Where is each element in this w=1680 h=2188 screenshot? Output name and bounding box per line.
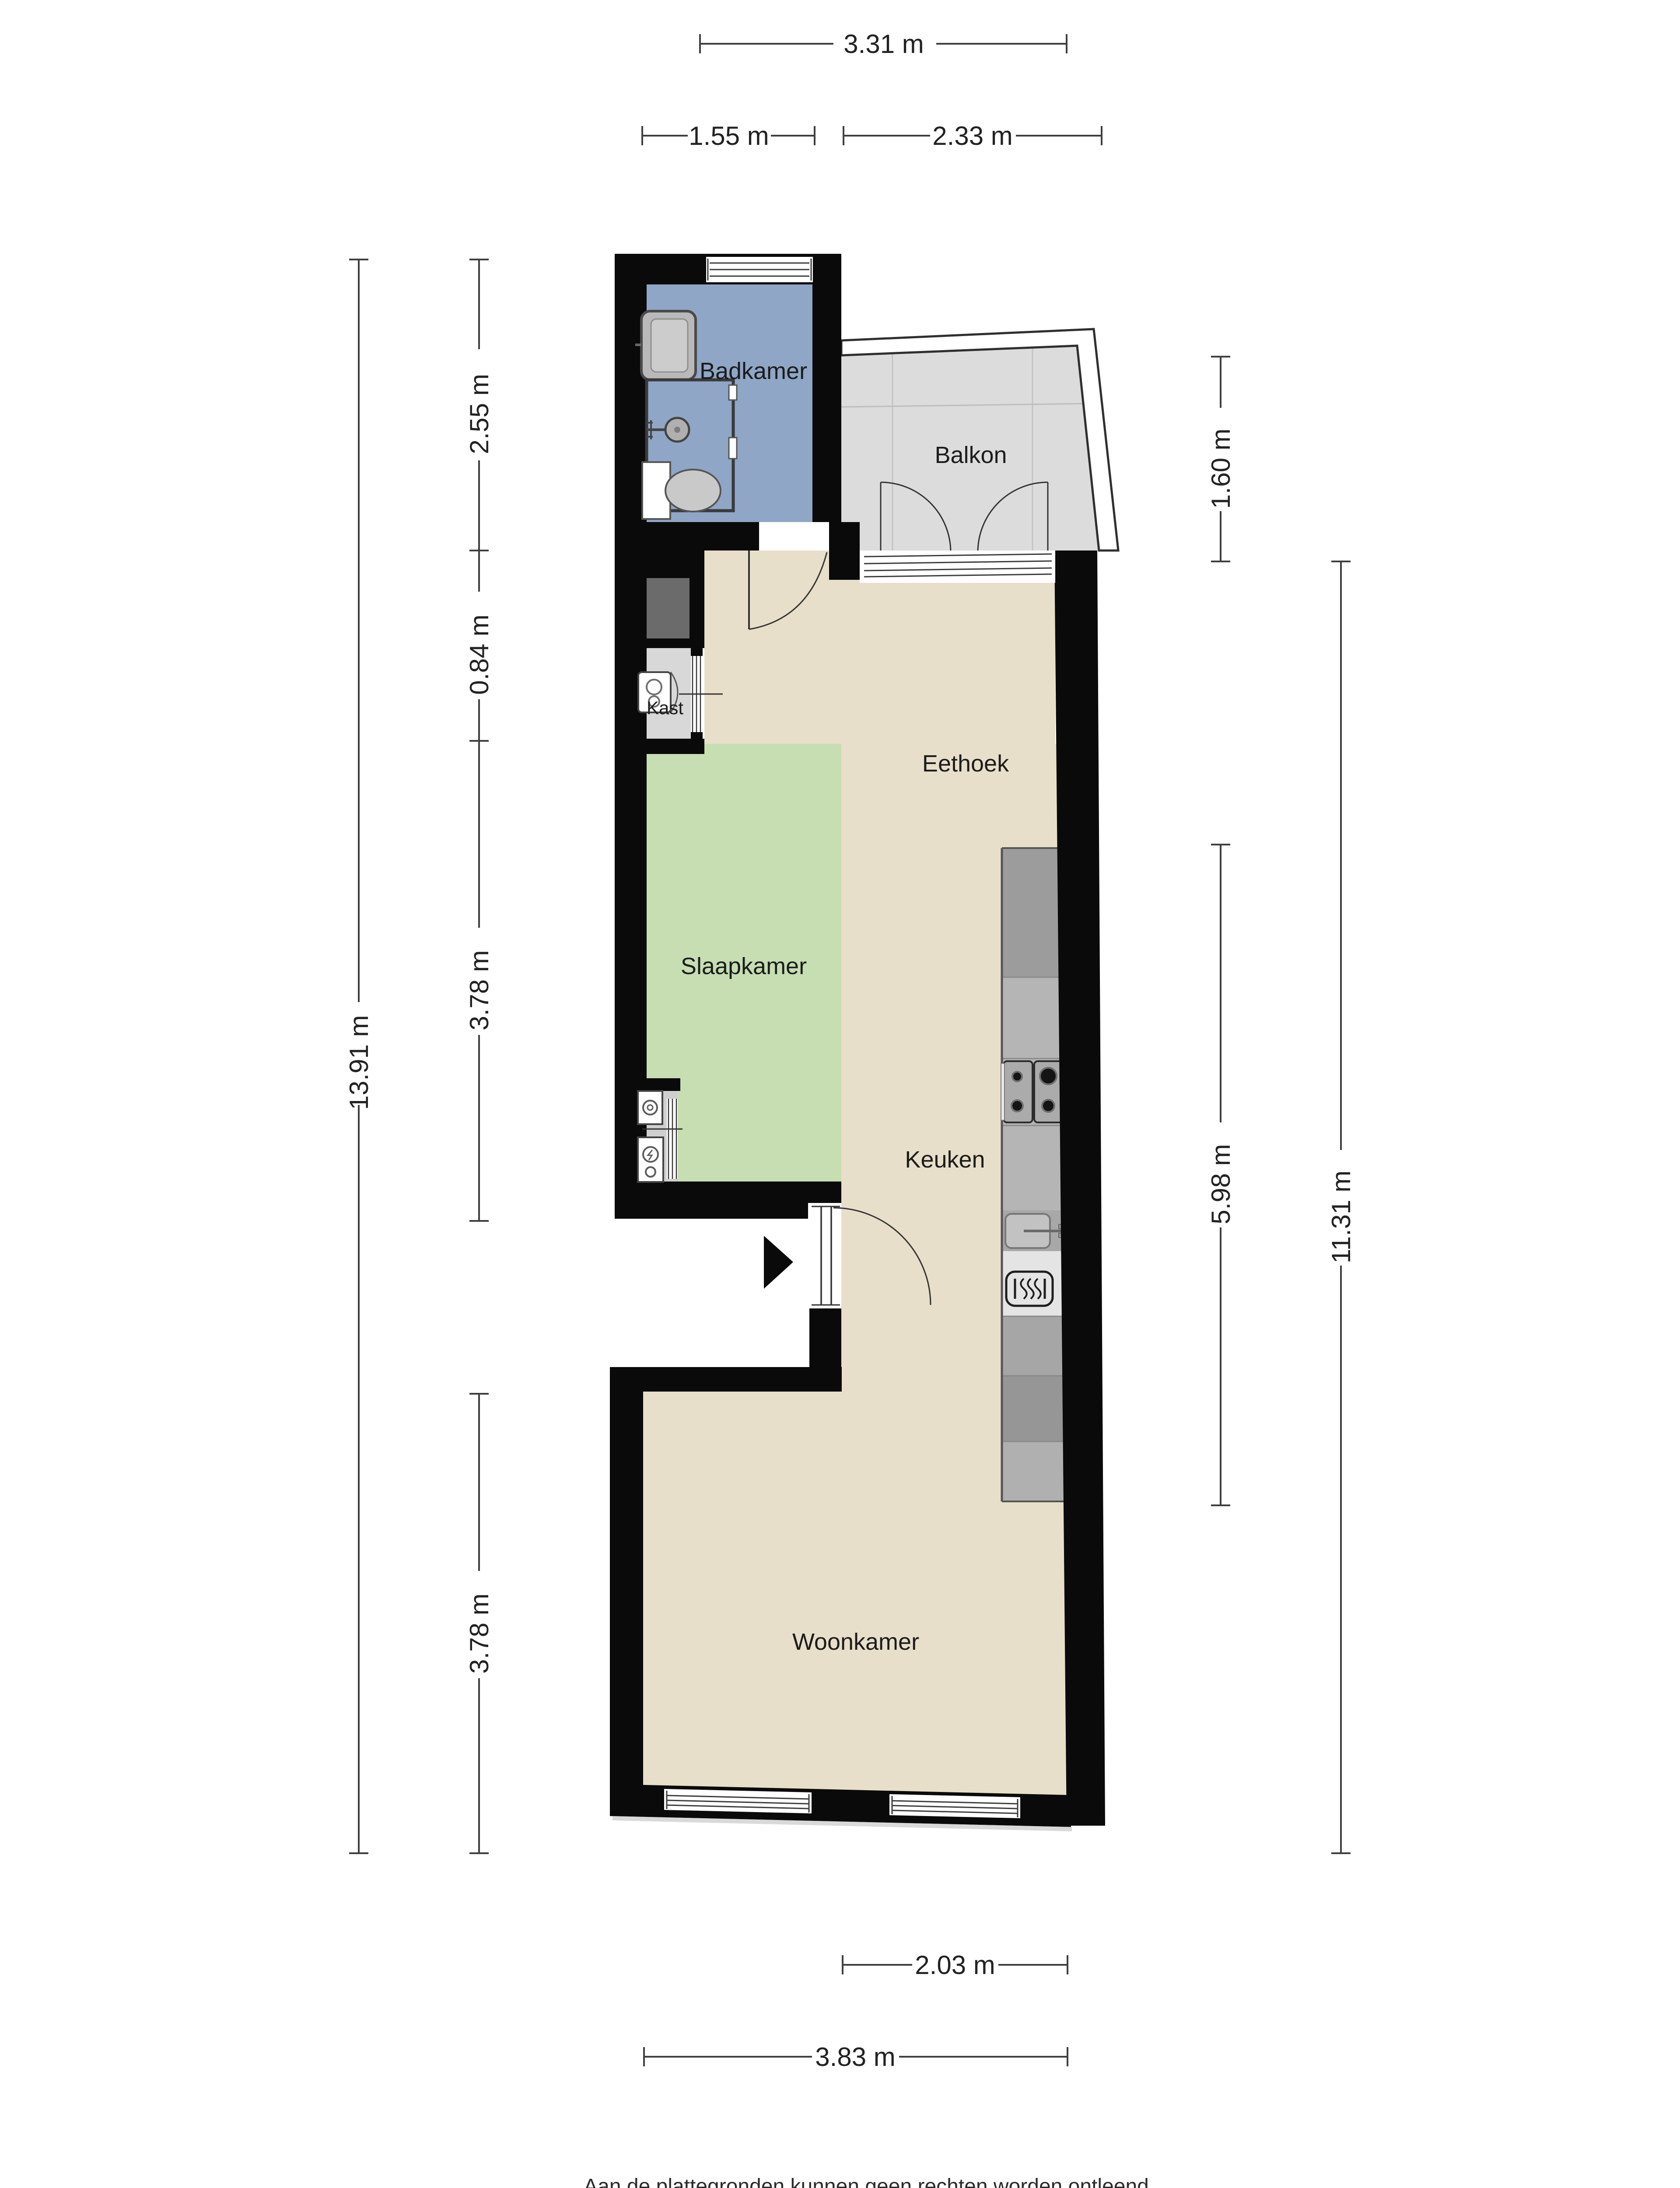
dim-bottom-total: 3.83 m	[644, 2042, 1067, 2072]
wall-left-upper	[615, 254, 647, 1219]
dim-top-balkon-label: 2.33 m	[932, 121, 1012, 151]
dim-left-slaapkamer-label: 3.78 m	[465, 950, 494, 1030]
wall-badkamer-bottom	[615, 522, 759, 551]
dim-left-woonkamer: 3.78 m	[465, 1394, 494, 1853]
dim-bottom-window-label: 2.03 m	[915, 1950, 995, 1980]
floorplan-page: Badkamer Balkon Eethoek Kast Slaapkamer …	[0, 0, 1680, 2188]
dim-top-total: 3.31 m	[700, 29, 1067, 59]
counter-segment	[1001, 848, 1067, 977]
dim-left-badkamer-label: 2.55 m	[465, 374, 494, 454]
dim-right-balkon-label: 1.60 m	[1206, 428, 1235, 508]
badkamer-label: Badkamer	[700, 358, 807, 384]
dim-bottom-total-label: 3.83 m	[815, 2042, 895, 2072]
woonkamer-window-right	[889, 1794, 1020, 1818]
wall-niche-right	[689, 578, 704, 638]
footer-disclaimer: Aan de plattegronden kunnen geen rechten…	[584, 2175, 1149, 2188]
slaapkamer-label: Slaapkamer	[681, 953, 807, 979]
dim-right-keuken-label: 5.98 m	[1206, 1144, 1235, 1224]
balkon-label: Balkon	[934, 442, 1007, 468]
wall-slaapkamer-bottom	[615, 1182, 841, 1219]
dim-left-woonkamer-label: 3.78 m	[465, 1593, 494, 1673]
balkon-group	[841, 329, 1118, 552]
niche-floor	[647, 578, 689, 638]
dim-top-badkamer: 1.55 m	[642, 121, 815, 151]
stove-icon	[1001, 1061, 1063, 1122]
dim-right-keuken: 5.98 m	[1206, 845, 1235, 1505]
wall-woonkamer-top	[610, 1367, 842, 1392]
wall-kast-door-cap-bottom	[691, 732, 703, 739]
floorplan-canvas: Badkamer Balkon Eethoek Kast Slaapkamer …	[0, 0, 1680, 2188]
dim-left-total-label: 13.91 m	[344, 1015, 374, 1110]
dim-right-balkon: 1.60 m	[1206, 357, 1235, 561]
badkamer-window	[706, 257, 813, 282]
kitchen-counter	[1001, 848, 1067, 1501]
dim-left-kast-label: 0.84 m	[465, 614, 494, 694]
dim-left-slaapkamer: 3.78 m	[465, 741, 494, 1221]
wall-woonkamer-left	[610, 1367, 643, 1816]
wall-washer-niche-top	[647, 1078, 680, 1091]
dim-right-open: 11.31 m	[1326, 561, 1356, 1853]
counter-segment	[1001, 1376, 1067, 1441]
wall-niche-kast-divider	[647, 638, 704, 648]
wall-kast-door-cap-top	[691, 648, 703, 656]
balkon-door-band	[860, 551, 1055, 583]
wall-corner-balkon	[829, 522, 860, 580]
counter-segment	[1001, 1441, 1067, 1501]
bath-sink-icon	[635, 311, 696, 380]
kast-label: Kast	[647, 698, 683, 718]
wall-kast-bottom	[615, 739, 704, 754]
dim-top-total-label: 3.31 m	[843, 29, 924, 59]
dim-top-balkon: 2.33 m	[843, 121, 1102, 151]
woonkamer-window-left	[664, 1789, 812, 1813]
counter-segment	[1001, 1316, 1067, 1376]
dim-left-kast: 0.84 m	[465, 551, 494, 741]
dim-right-open-label: 11.31 m	[1326, 1171, 1356, 1263]
dim-bottom-window: 2.03 m	[843, 1950, 1067, 1980]
footer: Aan de plattegronden kunnen geen rechten…	[584, 2175, 1149, 2188]
dim-left-badkamer: 2.55 m	[465, 259, 494, 551]
woonkamer-label: Woonkamer	[792, 1629, 919, 1655]
wall-badkamer-right	[812, 254, 841, 522]
entrance-arrow-icon	[764, 1236, 793, 1289]
washer-niche-appliances	[638, 1091, 663, 1182]
keuken-label: Keuken	[905, 1147, 985, 1173]
dim-top-badkamer-label: 1.55 m	[689, 121, 769, 151]
dim-left-total: 13.91 m	[344, 259, 374, 1853]
eethoek-label: Eethoek	[922, 750, 1009, 777]
wall-niche-top	[647, 551, 704, 578]
